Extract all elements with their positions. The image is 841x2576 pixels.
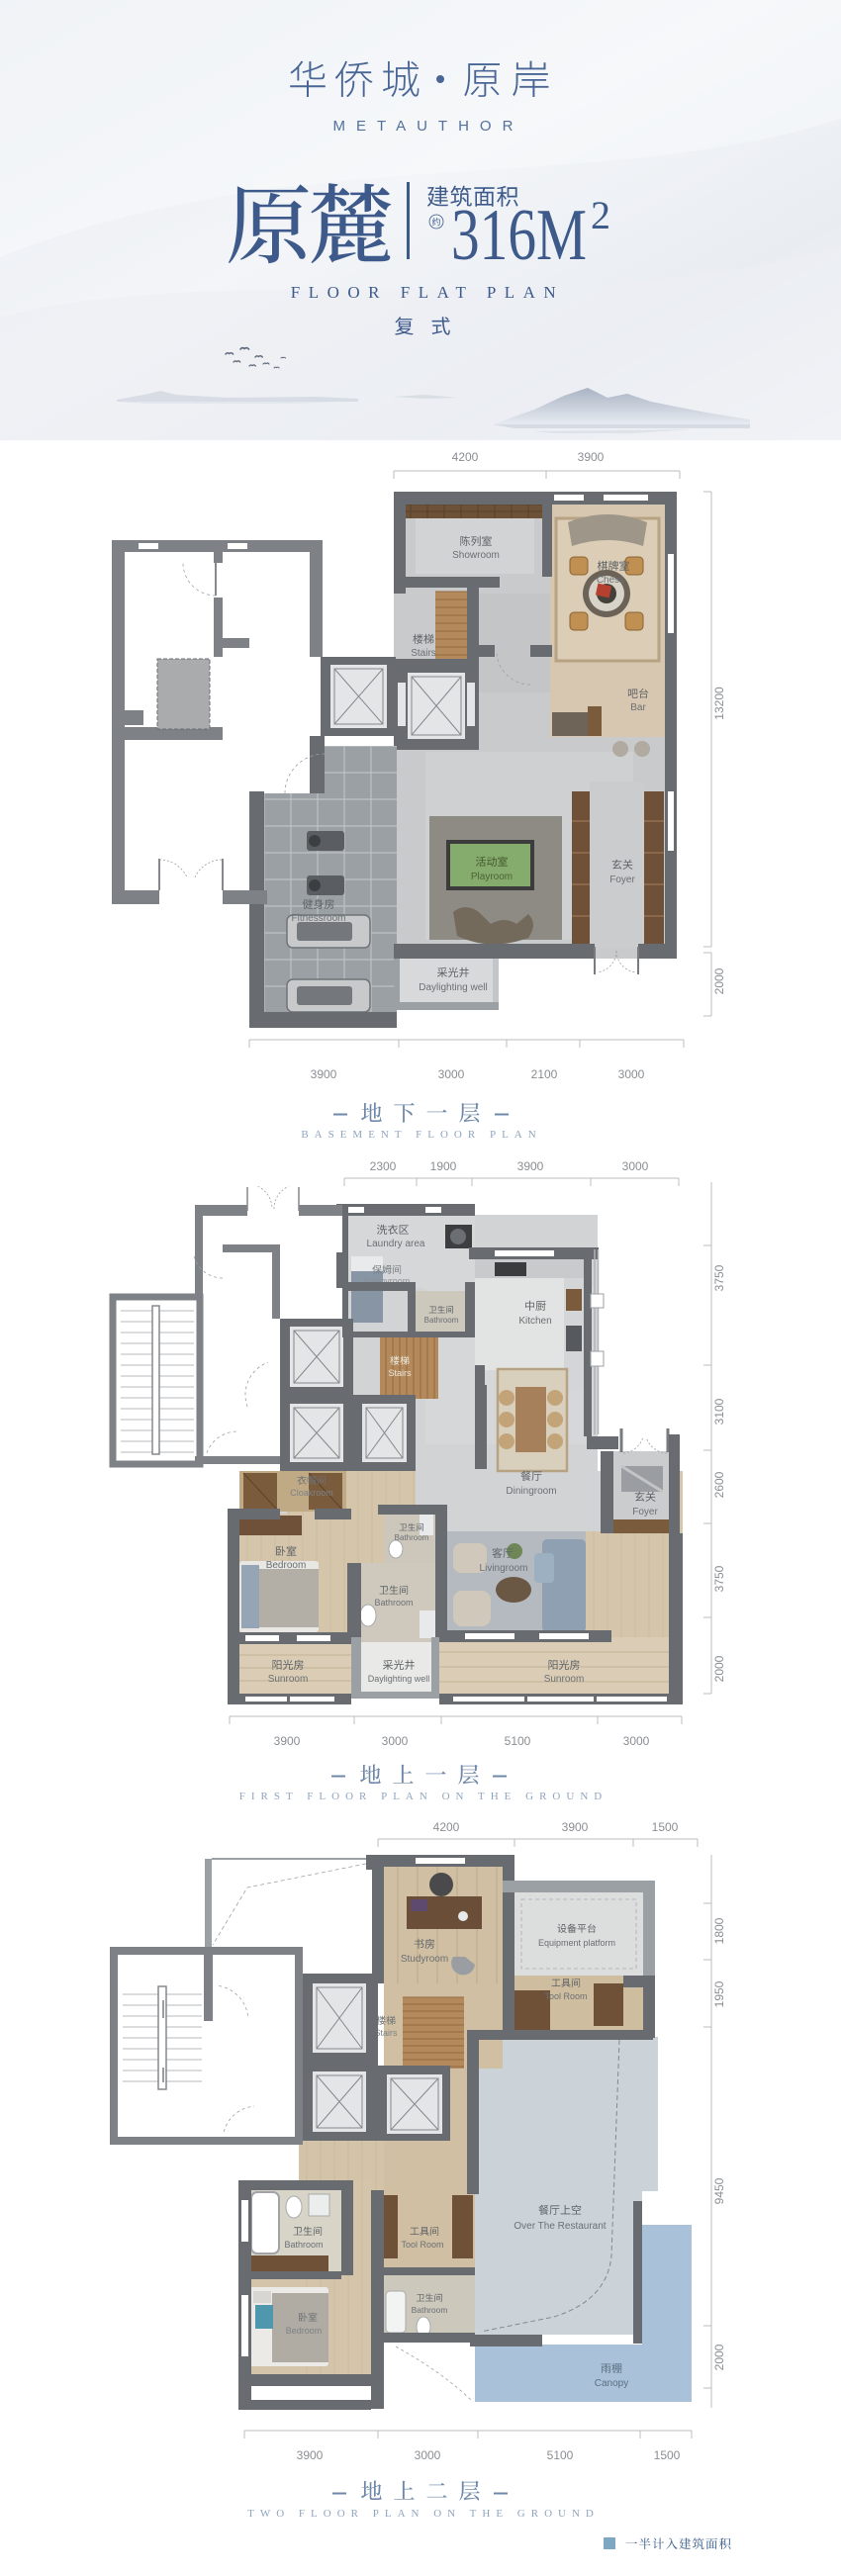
svg-text:2000: 2000: [712, 1655, 726, 1682]
svg-text:Fitnessroom: Fitnessroom: [291, 913, 345, 924]
svg-text:Sunroom: Sunroom: [544, 1674, 585, 1685]
svg-text:2000: 2000: [712, 2344, 726, 2370]
svg-text:TWO FLOOR PLAN ON THE GROUND: TWO FLOOR PLAN ON THE GROUND: [247, 2508, 600, 2520]
svg-text:Kitchen: Kitchen: [518, 1316, 551, 1327]
svg-text:Foyer: Foyer: [609, 874, 635, 885]
svg-text:Bedroom: Bedroom: [286, 2326, 323, 2336]
svg-text:Stairs: Stairs: [411, 648, 436, 659]
svg-text:Diningroom: Diningroom: [506, 1486, 556, 1497]
svg-text:Playroom: Playroom: [471, 872, 513, 882]
svg-text:3750: 3750: [712, 1565, 726, 1592]
svg-text:3000: 3000: [438, 1067, 465, 1081]
svg-text:1800: 1800: [712, 1917, 726, 1944]
svg-text:4200: 4200: [433, 1820, 460, 1834]
svg-text:Foyer: Foyer: [632, 1507, 658, 1518]
svg-text:Tool Room: Tool Room: [401, 2240, 443, 2250]
svg-text:316M: 316M: [451, 195, 587, 276]
svg-text:Bathroom: Bathroom: [424, 1316, 459, 1325]
svg-text:13200: 13200: [712, 687, 726, 720]
svg-text:3750: 3750: [712, 1264, 726, 1291]
svg-text:4200: 4200: [452, 450, 479, 464]
svg-text:5100: 5100: [547, 2448, 574, 2462]
svg-text:9450: 9450: [712, 2177, 726, 2204]
svg-text:3000: 3000: [622, 1159, 649, 1173]
svg-text:2000: 2000: [712, 967, 726, 994]
svg-text:Studyroom: Studyroom: [401, 1954, 448, 1965]
svg-text:Bedroom: Bedroom: [266, 1560, 307, 1571]
svg-text:3000: 3000: [618, 1067, 645, 1081]
svg-text:Stairs: Stairs: [388, 1368, 412, 1378]
svg-text:1900: 1900: [430, 1159, 457, 1173]
svg-text:Tool Room: Tool Room: [544, 1991, 587, 2001]
svg-text:Livingroom: Livingroom: [480, 1563, 528, 1574]
svg-text:METAUTHOR: METAUTHOR: [333, 118, 524, 135]
svg-text:3900: 3900: [517, 1159, 544, 1173]
svg-text:Over The Restaurant: Over The Restaurant: [514, 2221, 606, 2232]
svg-text:3000: 3000: [623, 1734, 650, 1748]
svg-text:2100: 2100: [531, 1067, 558, 1081]
svg-text:3900: 3900: [578, 450, 605, 464]
svg-text:Sunroom: Sunroom: [268, 1674, 309, 1685]
svg-text:3000: 3000: [382, 1734, 409, 1748]
svg-text:Laundry area: Laundry area: [367, 1239, 425, 1249]
svg-text:FIRST FLOOR PLAN ON THE GROUND: FIRST FLOOR PLAN ON THE GROUND: [239, 1791, 607, 1802]
svg-text:Stairs: Stairs: [374, 2028, 398, 2038]
svg-text:Cloakroom: Cloakroom: [290, 1488, 333, 1498]
svg-text:2300: 2300: [370, 1159, 397, 1173]
svg-text:1500: 1500: [652, 1820, 679, 1834]
svg-text:Daylighting well: Daylighting well: [368, 1674, 430, 1684]
svg-text:FLOOR FLAT PLAN: FLOOR FLAT PLAN: [291, 283, 564, 302]
svg-text:1950: 1950: [712, 1980, 726, 2007]
svg-text:5100: 5100: [505, 1734, 531, 1748]
svg-text:3900: 3900: [562, 1820, 589, 1834]
svg-text:Canopy: Canopy: [595, 2378, 628, 2389]
svg-text:2: 2: [591, 193, 610, 237]
svg-text:BASEMENT FLOOR PLAN: BASEMENT FLOOR PLAN: [301, 1129, 541, 1141]
svg-text:Equipment platform: Equipment platform: [538, 1938, 615, 1948]
svg-text:3000: 3000: [415, 2448, 441, 2462]
svg-text:Bathroom: Bathroom: [284, 2240, 323, 2250]
svg-text:Bar: Bar: [630, 702, 646, 713]
svg-text:Daylighting well: Daylighting well: [419, 982, 487, 993]
svg-text:Bathroom: Bathroom: [395, 1533, 429, 1542]
svg-text:1500: 1500: [654, 2448, 681, 2462]
svg-text:Showroom: Showroom: [452, 550, 500, 561]
svg-text:3900: 3900: [297, 2448, 324, 2462]
svg-text:3900: 3900: [311, 1067, 337, 1081]
svg-text:Chess: Chess: [597, 575, 624, 586]
svg-text:Bathroom: Bathroom: [412, 2305, 448, 2315]
svg-text:3100: 3100: [712, 1398, 726, 1425]
svg-text:Bathroom: Bathroom: [374, 1598, 413, 1608]
svg-text:2600: 2600: [712, 1471, 726, 1498]
svg-text:3900: 3900: [274, 1734, 301, 1748]
